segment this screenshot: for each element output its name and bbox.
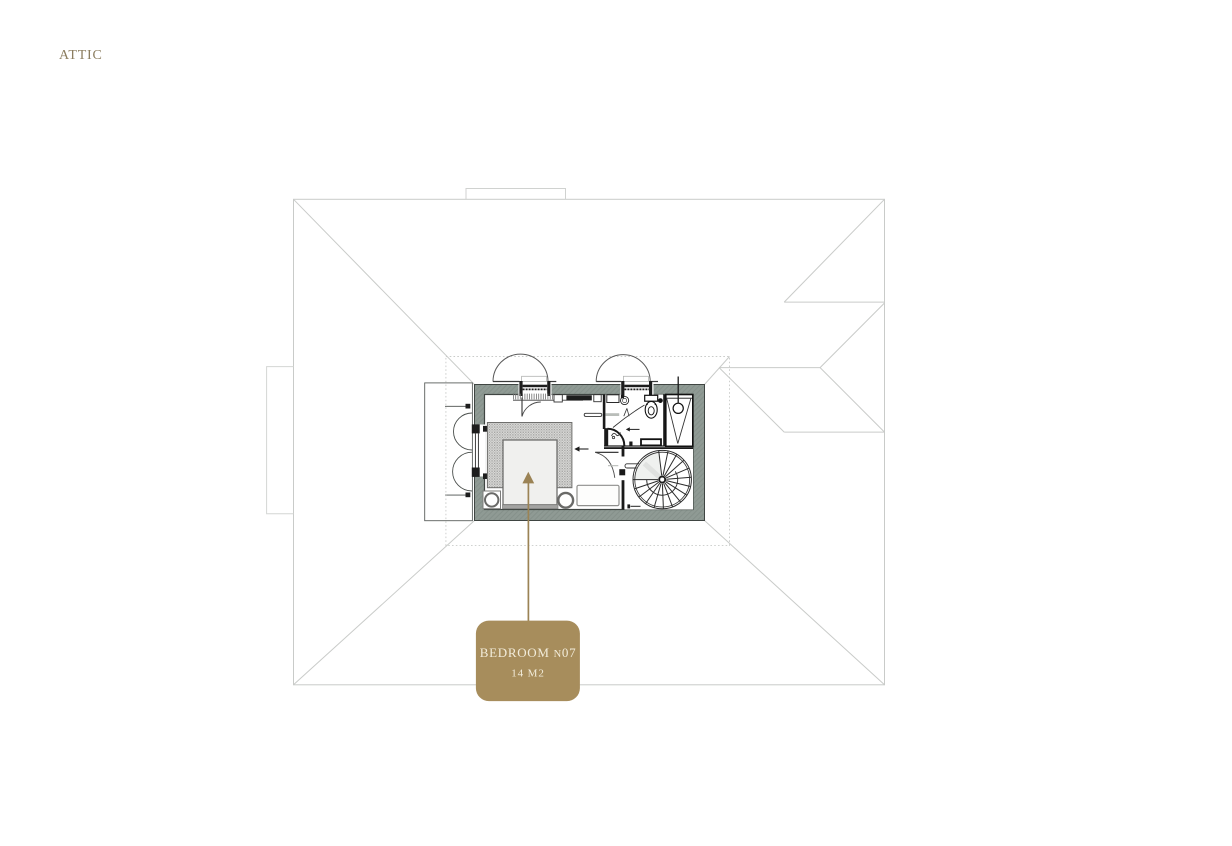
svg-text:14 M2: 14 M2 — [511, 668, 545, 680]
svg-text:BEDROOM N07: BEDROOM N07 — [480, 645, 577, 660]
svg-text:ATTIC: ATTIC — [59, 48, 103, 63]
